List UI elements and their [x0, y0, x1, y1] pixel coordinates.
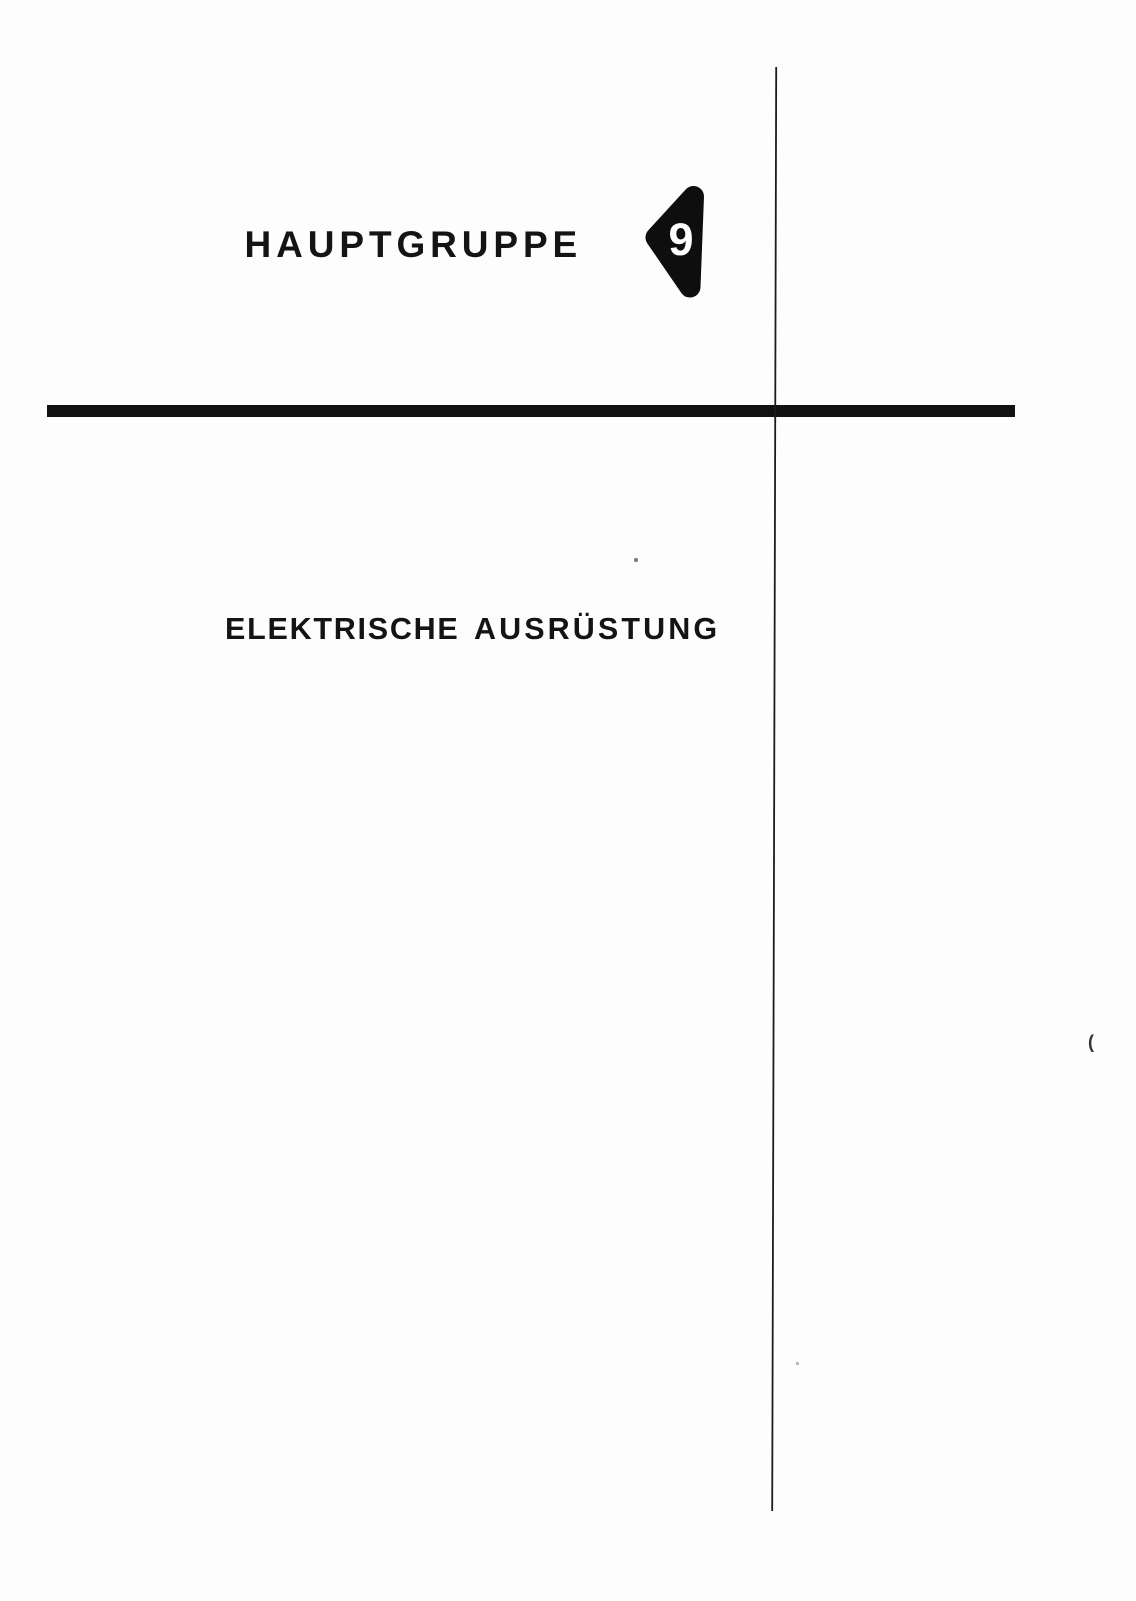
svg-text:9: 9	[668, 214, 693, 265]
